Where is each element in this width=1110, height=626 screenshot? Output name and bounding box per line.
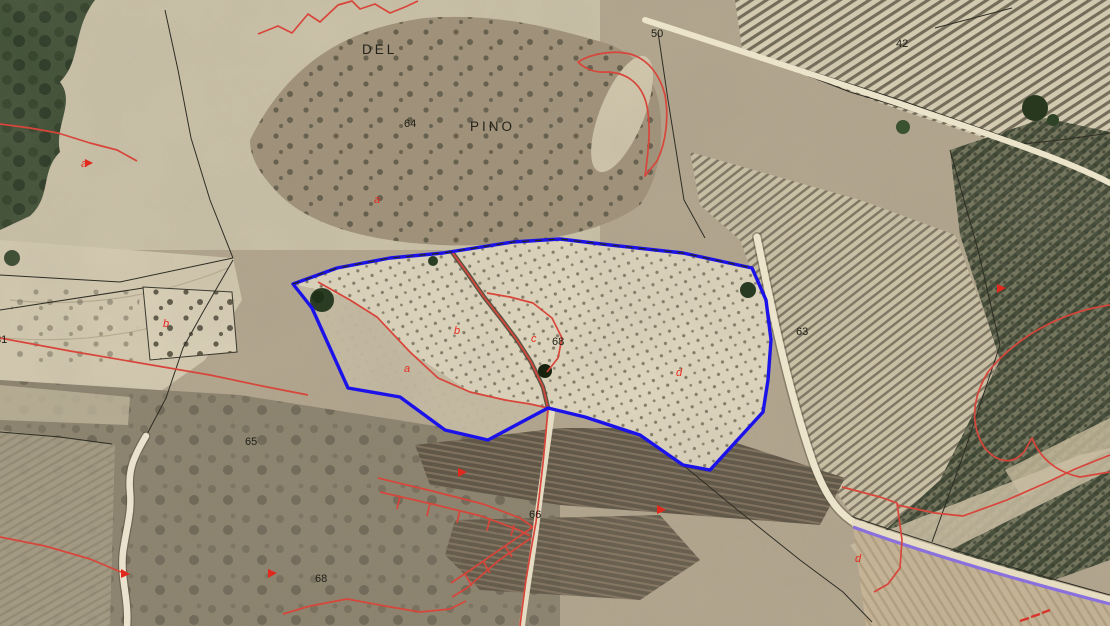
subparcel-letter-label: c	[531, 333, 537, 345]
terrain-grain-overlay	[0, 0, 1110, 626]
place-name-label: PINO	[470, 119, 515, 134]
parcel-number-label: 63	[796, 326, 808, 338]
parcel-number-label: 68	[315, 573, 327, 585]
subparcel-letter-label: d	[676, 367, 683, 379]
subparcel-letter-label: d	[855, 553, 862, 565]
map-viewport[interactable]: DELPINO504264636566686881aabcdbda	[0, 0, 1110, 626]
subparcel-letter-label: a	[404, 363, 410, 375]
parcel-number-label: 81	[0, 334, 7, 346]
subparcel-letter-label: b	[454, 325, 460, 337]
parcel-number-label: 65	[245, 436, 257, 448]
parcel-number-label: 50	[651, 28, 663, 40]
subparcel-letter-label: a	[81, 158, 87, 170]
parcel-number-label: 64	[404, 118, 416, 130]
place-name-label: DEL	[362, 42, 397, 57]
subparcel-letter-label: a	[374, 194, 380, 206]
parcel-number-label: 42	[896, 38, 908, 50]
subparcel-letter-label: b	[163, 318, 169, 330]
parcel-number-label: 68	[552, 336, 564, 348]
parcel-number-label: 66	[529, 509, 541, 521]
aerial-map[interactable]: DELPINO504264636566686881aabcdbda	[0, 0, 1110, 626]
